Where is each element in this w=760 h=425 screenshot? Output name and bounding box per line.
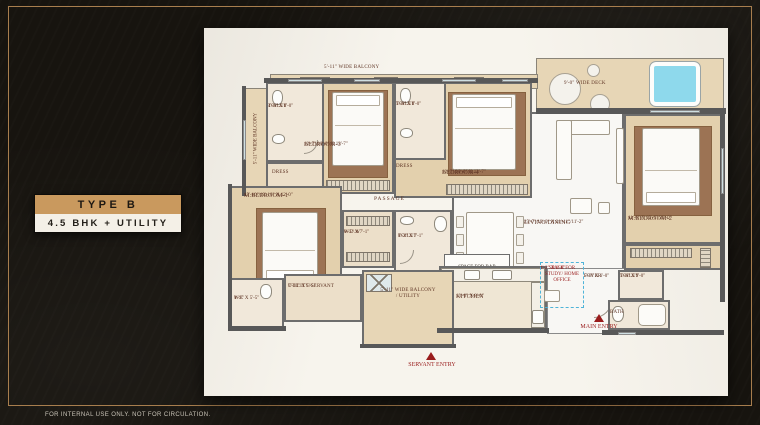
- wall: [228, 184, 232, 330]
- room-name: PASSAGE: [374, 196, 405, 203]
- type-subtitle: 4.5 BHK + UTILITY: [35, 214, 181, 232]
- wall: [228, 326, 286, 331]
- top-balcony-label: 5'-11" WIDE BALCONY: [324, 65, 379, 71]
- chair: [516, 252, 524, 264]
- room-dim: 4'-9" X 5'-5": [234, 296, 259, 302]
- room-dim: 5'-6" X 8'-0": [396, 102, 421, 108]
- window: [650, 110, 700, 113]
- planter-small: [587, 64, 600, 77]
- room-dim: 25'-7"/13'-0" X 21'-11"/11'-2": [524, 220, 583, 226]
- window: [243, 120, 246, 160]
- floor-plan: 9'-0" WIDE DECK 5'-11" WIDE BALCONY 5'-1…: [204, 28, 728, 396]
- side-table: [598, 202, 610, 214]
- servant-entry-label: SERVANT ENTRY: [404, 362, 460, 369]
- wardrobe-hatch: [346, 216, 390, 226]
- window: [721, 148, 724, 194]
- chair: [456, 234, 464, 246]
- wc-fixture: [260, 284, 272, 299]
- bathtub: [638, 304, 666, 326]
- window: [288, 79, 322, 82]
- chair: [456, 216, 464, 228]
- window: [354, 79, 380, 82]
- room-dim: 15'-10"/19'-10" X 12'-0": [244, 193, 293, 199]
- wc-fixture: [400, 88, 411, 103]
- deck-label: 9'-0" WIDE DECK: [564, 81, 606, 87]
- wall: [360, 344, 456, 348]
- basin-fixture: [400, 128, 413, 138]
- main-entry-arrow: [594, 314, 604, 322]
- wardrobe-hatch: [700, 248, 711, 268]
- wardrobe-hatch: [630, 248, 692, 258]
- room-name: DRESS: [272, 170, 289, 176]
- wall: [437, 328, 549, 333]
- sink: [464, 270, 480, 280]
- room-dim: 4'-6" X 8'-0": [268, 104, 293, 110]
- fridge: [532, 310, 544, 324]
- tv-console: [616, 128, 624, 184]
- side-table: [570, 198, 592, 214]
- bed: [452, 94, 516, 170]
- room-name: DRESS: [396, 164, 413, 170]
- study-zone: [540, 262, 584, 308]
- bed: [642, 128, 700, 206]
- chair: [516, 216, 524, 228]
- main-entry-label: MAIN ENTRY: [576, 324, 622, 331]
- room-name: 5'-11" WIDE BALCONY / UTILITY: [380, 288, 436, 301]
- wardrobe-hatch: [446, 184, 528, 195]
- sofa: [556, 120, 572, 180]
- type-badge: TYPE B 4.5 BHK + UTILITY: [34, 194, 182, 233]
- chair: [516, 234, 524, 246]
- bed: [332, 92, 384, 166]
- room-dim: 8'-2" X 7'-1": [398, 234, 423, 240]
- left-balcony-label: 5'-11" WIDE BALCONY: [254, 89, 259, 189]
- basin-fixture: [272, 134, 285, 144]
- room-dim: 5'-0" X 6'-0": [584, 274, 609, 280]
- basin-fixture: [400, 216, 414, 225]
- disclaimer-text: FOR INTERNAL USE ONLY. NOT FOR CIRCULATI…: [45, 412, 211, 418]
- room-utility-servant: [284, 274, 362, 322]
- hob: [492, 270, 512, 280]
- room-name: BATH: [610, 310, 624, 316]
- type-title: TYPE B: [35, 195, 181, 214]
- room-dim: 13'-0" X 8'-0": [456, 294, 484, 300]
- room-dim: 11'-6" X 15'-6"/22'-0": [628, 216, 672, 222]
- wardrobe-hatch: [346, 252, 390, 262]
- room-dim: 5'-6" X 9'-0": [620, 274, 645, 280]
- wall: [720, 112, 725, 302]
- room-dim: 12'-7"/10'-0" X 13'-7": [304, 142, 348, 148]
- room-dim: 12'-7"/10'-0" X 13'-7": [442, 170, 486, 176]
- room-dim: 6'-5" X 7'-1": [344, 230, 369, 236]
- window: [442, 79, 476, 82]
- planter: [549, 73, 581, 105]
- wc-fixture: [272, 90, 283, 105]
- window: [502, 79, 528, 82]
- door-gap: [618, 332, 636, 335]
- room-wc: [230, 278, 284, 330]
- jacuzzi: [650, 62, 700, 106]
- servant-entry-arrow: [426, 352, 436, 360]
- room-dim: 7'-10" X 5'-5": [288, 284, 316, 290]
- wc-fixture: [434, 216, 447, 232]
